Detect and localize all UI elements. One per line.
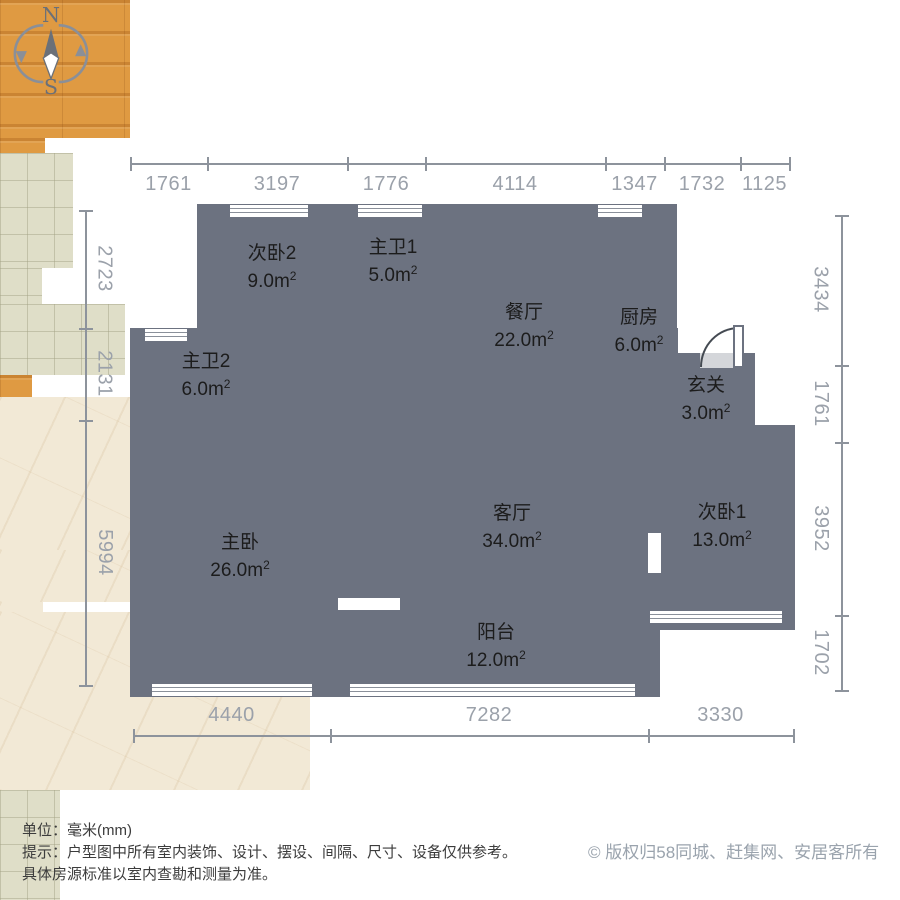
dimension-label: 3434 — [809, 215, 832, 365]
dimension-tick — [740, 157, 742, 171]
floor-bedroom2 — [0, 138, 45, 153]
bedroom2-window-icon — [230, 204, 308, 218]
dimension-tick — [79, 328, 93, 330]
bedroom1-window-icon — [650, 610, 782, 625]
dimension-tick — [648, 729, 650, 743]
balcony-window-icon — [350, 683, 635, 697]
dimension-tick — [793, 729, 795, 743]
dimension-label: 4440 — [133, 704, 330, 727]
dimension-tick — [835, 615, 849, 617]
room-label-living: 客厅34.0m2 — [482, 503, 542, 553]
floor-bath1 — [0, 153, 73, 268]
balcony-opening — [338, 598, 400, 610]
dimension-tick — [79, 420, 93, 422]
dimension-tick — [133, 729, 135, 743]
room-label-dining: 餐厅22.0m2 — [494, 302, 554, 352]
dimension-label: 3330 — [648, 704, 793, 727]
dimension-line — [133, 735, 793, 737]
unit-note: 单位：毫米(mm) — [22, 820, 517, 842]
room-label-bedroom1: 次卧113.0m2 — [692, 502, 752, 552]
dimension-line — [841, 215, 843, 690]
dimension-tick — [835, 690, 849, 692]
master-window-icon — [152, 683, 312, 697]
dimension-tick — [835, 442, 849, 444]
compass-north-label: N — [42, 6, 60, 27]
dimension-label: 3197 — [207, 173, 347, 196]
dimension-tick — [79, 685, 93, 687]
copyright-notice: © 版权归58同城、赶集网、安居客所有 — [588, 838, 879, 863]
dimension-tick — [835, 365, 849, 367]
bath2-window-icon — [145, 328, 187, 341]
dimension-tick — [425, 157, 427, 171]
dimension-label: 1761 — [130, 173, 207, 196]
room-label-entry: 玄关3.0m2 — [682, 375, 731, 425]
bath1-window-icon — [358, 204, 422, 218]
room-label-master: 主卧26.0m2 — [210, 532, 270, 582]
room-label-bath1: 主卫15.0m2 — [369, 237, 418, 287]
dimension-tick — [789, 157, 791, 171]
floor-plan: 次卧29.0m2主卫15.0m2餐厅22.0m2厨房6.0m2玄关3.0m2主卫… — [0, 0, 900, 900]
floorplan-page: N S 次卧29.0m2主卫15.0m2餐厅22.0m2厨房6.0m2玄关3.0… — [0, 0, 900, 900]
dimension-tick — [330, 729, 332, 743]
dimension-tick — [79, 210, 93, 212]
dimension-tick — [347, 157, 349, 171]
dimension-label: 1702 — [809, 615, 832, 690]
floor-bath1 — [0, 268, 42, 304]
dimension-label: 1732 — [664, 173, 740, 196]
compass-icon: N S — [8, 6, 94, 98]
dimension-label: 1347 — [605, 173, 664, 196]
dimension-label: 1761 — [809, 365, 832, 442]
tip-line1: 提示：户型图中所有室内装饰、设计、摆设、间隔、尺寸、设备仅供参考。 — [22, 842, 517, 864]
floor-master-door — [0, 602, 43, 612]
tip-line2: 具体房源标准以室内查勘和测量为准。 — [22, 864, 517, 886]
dimension-label: 1776 — [347, 173, 425, 196]
room-label-balcony: 阳台12.0m2 — [466, 622, 526, 672]
wall-segment — [335, 370, 648, 610]
dimension-tick — [207, 157, 209, 171]
dimension-tick — [130, 157, 132, 171]
dimension-label: 4114 — [425, 173, 605, 196]
dimension-tick — [664, 157, 666, 171]
dimension-label: 2723 — [93, 210, 116, 328]
room-label-kitchen: 厨房6.0m2 — [615, 307, 664, 357]
dimension-label: 1125 — [740, 173, 789, 196]
dimension-tick — [605, 157, 607, 171]
floor-bath2-door — [0, 375, 32, 397]
room-label-bedroom2: 次卧29.0m2 — [248, 243, 297, 293]
dimension-label: 2131 — [93, 328, 116, 420]
dimension-tick — [835, 215, 849, 217]
footer-notes: 单位：毫米(mm) 提示：户型图中所有室内装饰、设计、摆设、间隔、尺寸、设备仅供… — [22, 820, 517, 886]
dimension-line — [130, 163, 789, 165]
entry-door-leaf — [733, 325, 744, 368]
dimension-label: 5994 — [93, 420, 116, 685]
kitchen-window-icon — [598, 204, 642, 218]
dimension-line — [85, 210, 87, 685]
bedroom1-door-opening — [648, 533, 661, 573]
dimension-label: 7282 — [330, 704, 648, 727]
room-label-bath2: 主卫26.0m2 — [182, 351, 231, 401]
dimension-label: 3952 — [809, 442, 832, 615]
